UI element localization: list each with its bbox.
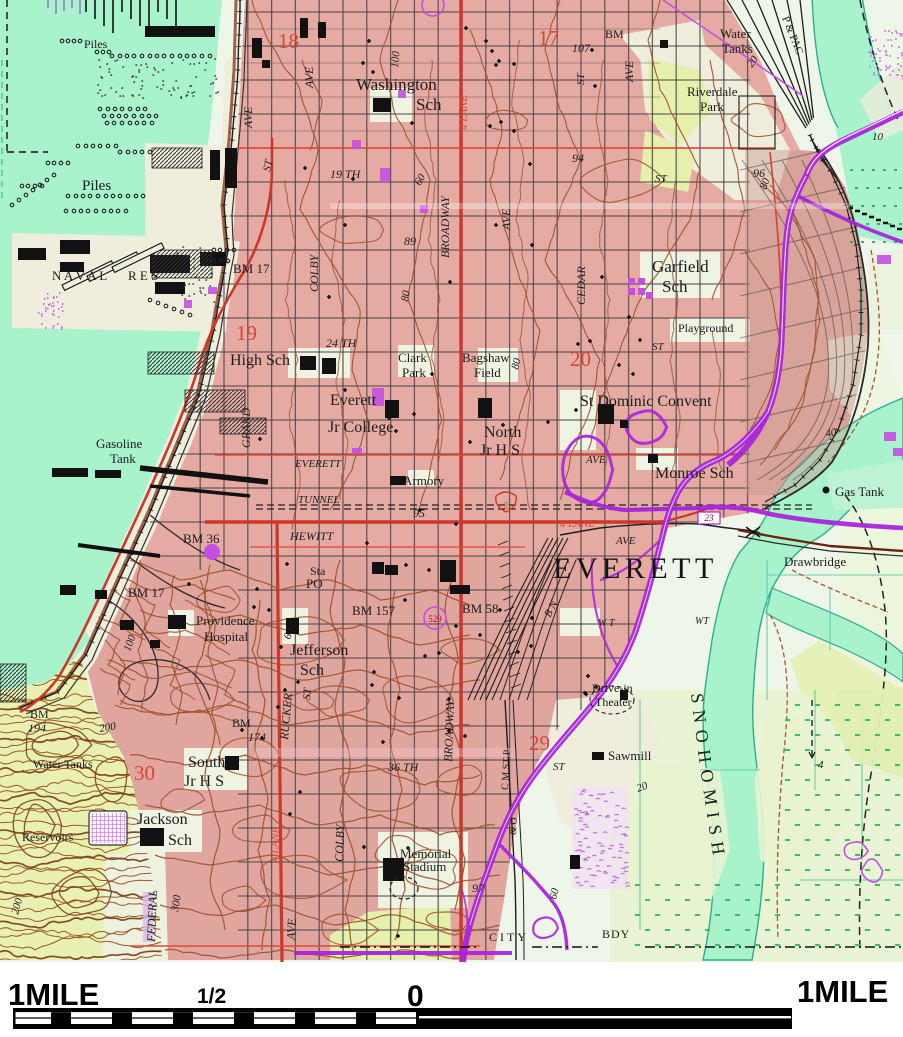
svg-text:Sch: Sch bbox=[168, 832, 192, 849]
svg-text:Sch: Sch bbox=[416, 95, 442, 114]
svg-text:Sawmill: Sawmill bbox=[608, 748, 652, 763]
svg-text:174: 174 bbox=[248, 730, 266, 744]
svg-text:Providence: Providence bbox=[196, 613, 255, 628]
svg-text:R E S: R E S bbox=[128, 268, 158, 283]
svg-text:95: 95 bbox=[413, 506, 425, 520]
svg-text:23: 23 bbox=[705, 513, 715, 523]
svg-text:Jr H S: Jr H S bbox=[184, 773, 224, 790]
svg-text:BM: BM bbox=[30, 707, 49, 721]
svg-text:BM 58: BM 58 bbox=[462, 601, 498, 616]
svg-text:Armory: Armory bbox=[403, 473, 445, 488]
svg-text:AVE: AVE bbox=[302, 66, 316, 89]
svg-text:South: South bbox=[188, 754, 225, 771]
svg-text:Sch: Sch bbox=[662, 277, 688, 296]
svg-text:4: 4 bbox=[818, 759, 824, 771]
svg-text:High Sch: High Sch bbox=[230, 352, 290, 369]
svg-text:19 TH: 19 TH bbox=[330, 167, 362, 181]
svg-text:1MILE: 1MILE bbox=[797, 974, 888, 1009]
svg-text:CITY: CITY bbox=[489, 930, 529, 944]
svg-text:Jefferson: Jefferson bbox=[290, 642, 348, 659]
svg-text:Sch: Sch bbox=[300, 662, 324, 679]
svg-text:BDY: BDY bbox=[602, 927, 630, 941]
svg-text:BM 157: BM 157 bbox=[352, 603, 395, 618]
svg-text:EVERETT: EVERETT bbox=[553, 552, 718, 585]
svg-text:4 LANE: 4 LANE bbox=[560, 518, 595, 530]
svg-text:BM: BM bbox=[605, 27, 624, 41]
svg-text:& O: & O bbox=[508, 817, 520, 835]
svg-text:WT: WT bbox=[695, 616, 710, 627]
svg-text:107: 107 bbox=[572, 41, 591, 55]
svg-text:Playground: Playground bbox=[678, 321, 733, 335]
svg-text:FEDERAL: FEDERAL bbox=[144, 889, 160, 943]
svg-text:36 TH: 36 TH bbox=[387, 760, 420, 774]
svg-text:ST: ST bbox=[553, 761, 566, 773]
svg-text:18: 18 bbox=[278, 29, 299, 53]
svg-text:Garfield: Garfield bbox=[652, 257, 709, 276]
svg-text:Piles: Piles bbox=[82, 178, 111, 194]
svg-text:AVE: AVE bbox=[284, 918, 299, 942]
svg-text:Water Tanks: Water Tanks bbox=[33, 757, 93, 771]
svg-text:Drawbridge: Drawbridge bbox=[784, 554, 846, 569]
svg-text:BM 36: BM 36 bbox=[183, 531, 220, 546]
svg-text:BM: BM bbox=[232, 716, 251, 730]
svg-text:W T: W T bbox=[598, 618, 616, 629]
svg-text:EVERETT: EVERETT bbox=[294, 458, 342, 470]
svg-text:Jr College: Jr College bbox=[328, 419, 393, 436]
svg-text:97: 97 bbox=[472, 881, 485, 895]
svg-text:Drive-in: Drive-in bbox=[592, 681, 633, 695]
svg-text:100: 100 bbox=[389, 50, 402, 68]
svg-text:BM 17: BM 17 bbox=[233, 261, 270, 276]
svg-text:AVE: AVE bbox=[499, 208, 513, 231]
svg-text:AVE: AVE bbox=[615, 535, 636, 547]
svg-text:AVE: AVE bbox=[241, 106, 255, 129]
svg-text:North: North bbox=[484, 424, 521, 441]
svg-text:Park: Park bbox=[402, 365, 426, 380]
svg-text:TUNNEL: TUNNEL bbox=[298, 494, 340, 506]
svg-text:ST: ST bbox=[652, 341, 665, 353]
svg-text:BM 17: BM 17 bbox=[128, 585, 165, 600]
svg-text:GRAND: GRAND bbox=[239, 408, 253, 448]
svg-text:Piles: Piles bbox=[84, 37, 108, 51]
svg-text:Gasoline: Gasoline bbox=[96, 436, 142, 451]
svg-text:89: 89 bbox=[404, 234, 416, 248]
svg-text:29: 29 bbox=[529, 731, 550, 755]
svg-text:94: 94 bbox=[572, 151, 584, 165]
svg-text:Bagshaw: Bagshaw bbox=[462, 350, 510, 365]
svg-text:Water: Water bbox=[720, 26, 751, 41]
svg-text:Hospital: Hospital bbox=[204, 629, 248, 644]
svg-text:St Dominic Convent: St Dominic Convent bbox=[580, 393, 712, 410]
svg-text:HEWITT: HEWITT bbox=[289, 529, 335, 543]
svg-text:Everett: Everett bbox=[330, 392, 377, 409]
svg-text:Park: Park bbox=[700, 99, 724, 114]
svg-text:BROADWAY: BROADWAY bbox=[438, 195, 452, 258]
svg-text:4 LANE: 4 LANE bbox=[458, 95, 470, 130]
svg-text:PO: PO bbox=[306, 576, 323, 591]
svg-text:1MILE: 1MILE bbox=[8, 977, 99, 1012]
svg-text:Theater: Theater bbox=[595, 695, 632, 709]
svg-text:ST: ST bbox=[655, 173, 668, 185]
svg-text:20: 20 bbox=[570, 347, 591, 371]
svg-text:AVE: AVE bbox=[585, 454, 606, 466]
svg-text:30: 30 bbox=[134, 761, 155, 785]
svg-text:529: 529 bbox=[428, 614, 442, 624]
svg-text:C M ST P: C M ST P bbox=[500, 749, 513, 790]
svg-text:Washington: Washington bbox=[356, 75, 437, 94]
svg-text:AVE: AVE bbox=[622, 60, 636, 83]
svg-text:ST: ST bbox=[575, 73, 587, 86]
svg-text:Jr H S: Jr H S bbox=[480, 442, 520, 459]
svg-text:Riverdale: Riverdale bbox=[687, 84, 738, 99]
svg-text:BROADWAY: BROADWAY bbox=[441, 699, 457, 763]
svg-text:Jackson: Jackson bbox=[137, 811, 188, 828]
svg-text:Gas Tank: Gas Tank bbox=[835, 484, 885, 499]
svg-text:Field: Field bbox=[474, 365, 501, 380]
svg-text:Tanks: Tanks bbox=[722, 41, 753, 56]
svg-text:194: 194 bbox=[28, 721, 46, 735]
svg-text:4 LANE: 4 LANE bbox=[269, 826, 282, 862]
svg-text:ST: ST bbox=[301, 687, 314, 700]
svg-text:CEDAR: CEDAR bbox=[574, 266, 588, 305]
svg-text:COLBY: COLBY bbox=[332, 823, 347, 862]
svg-text:Monroe Sch: Monroe Sch bbox=[655, 465, 734, 482]
svg-text:Clark: Clark bbox=[398, 350, 427, 365]
svg-text:1/2: 1/2 bbox=[197, 985, 226, 1008]
svg-text:N A V A L: N A V A L bbox=[52, 268, 107, 283]
svg-text:COLBY: COLBY bbox=[307, 253, 321, 292]
svg-text:Reservoirs: Reservoirs bbox=[22, 830, 74, 844]
svg-text:24 TH: 24 TH bbox=[326, 336, 358, 350]
svg-text:Tank: Tank bbox=[110, 451, 136, 466]
svg-text:Stadium: Stadium bbox=[403, 859, 446, 874]
svg-text:19: 19 bbox=[236, 321, 257, 345]
svg-text:17: 17 bbox=[538, 26, 559, 50]
svg-text:2: 2 bbox=[504, 501, 509, 512]
svg-text:10: 10 bbox=[872, 131, 884, 143]
